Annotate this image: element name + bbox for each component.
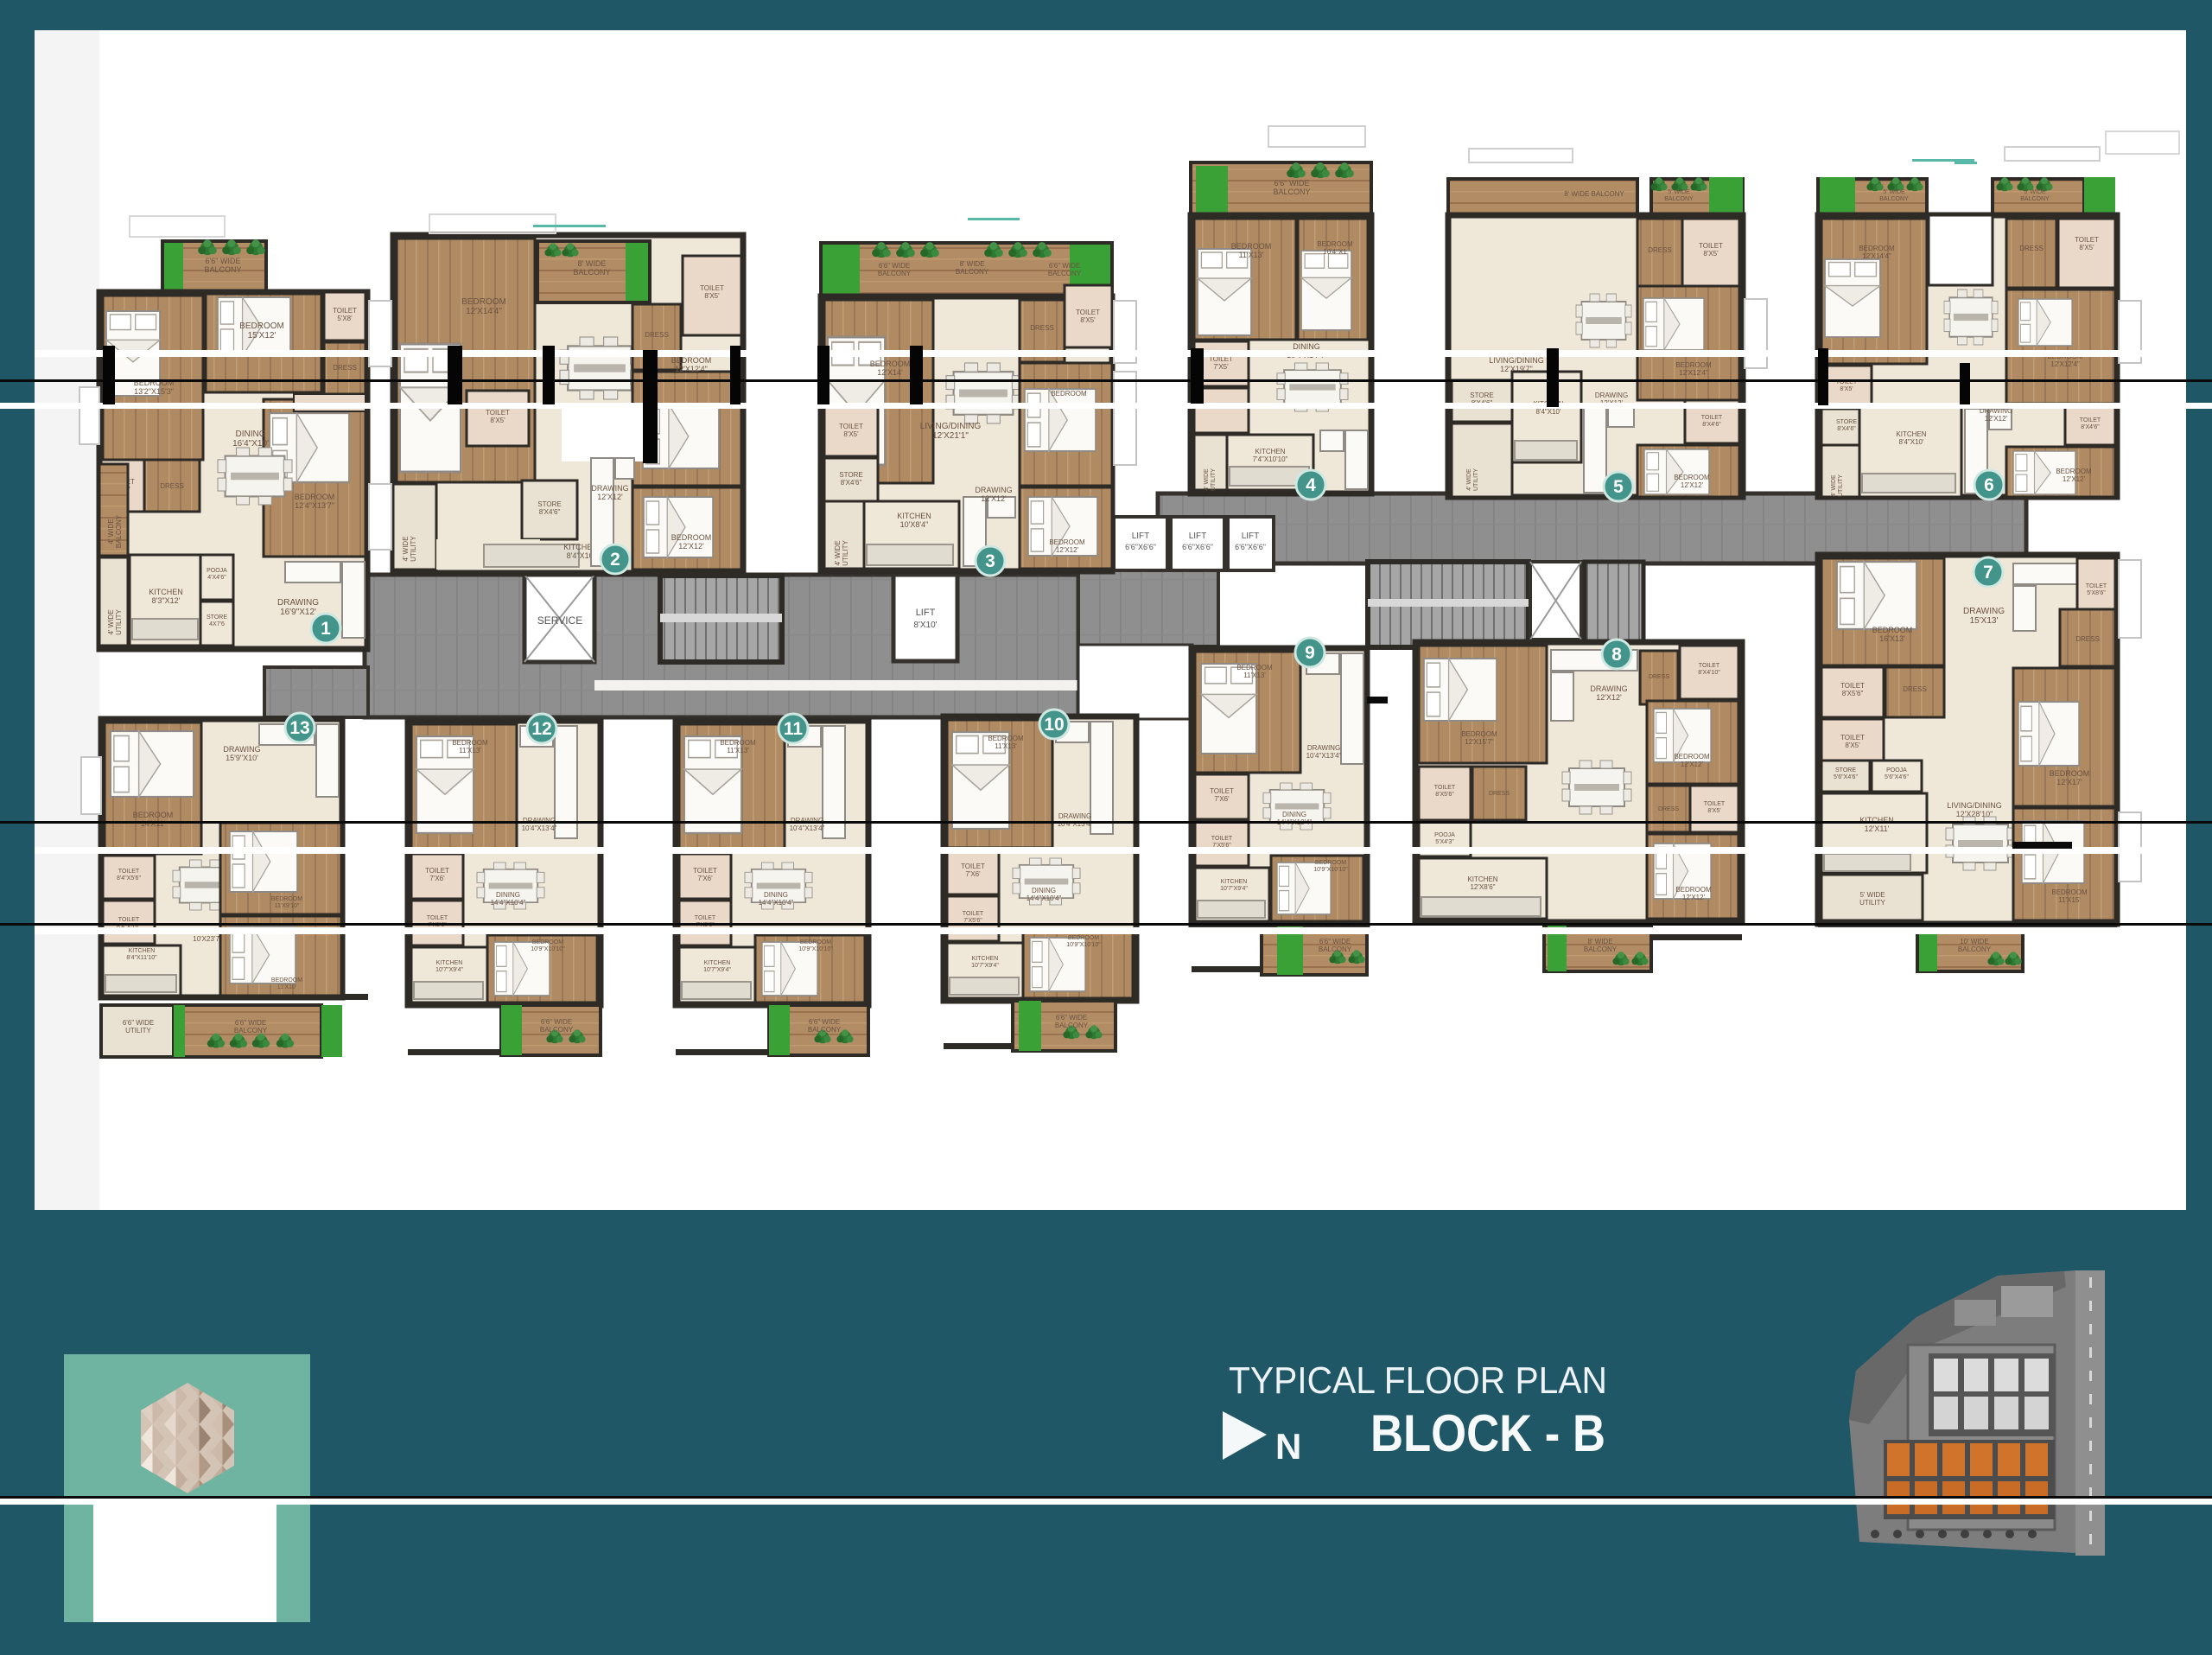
svg-text:7: 7 <box>1983 563 1993 582</box>
svg-text:6'6" WIDEBALCONY: 6'6" WIDEBALCONY <box>234 1019 268 1034</box>
svg-text:DRESS: DRESS <box>333 364 357 372</box>
svg-text:6'6" WIDEBALCONY: 6'6" WIDEBALCONY <box>1319 938 1352 953</box>
svg-text:6'6" WIDEUTILITY: 6'6" WIDEUTILITY <box>123 1019 154 1034</box>
svg-text:8' WIDEBALCONY: 8' WIDEBALCONY <box>956 260 989 276</box>
svg-text:6: 6 <box>1984 475 1994 495</box>
svg-text:BEDROOM: BEDROOM <box>1051 390 1087 398</box>
svg-text:DRESS: DRESS <box>2075 635 2100 643</box>
svg-text:DRAWING16'9"X12': DRAWING16'9"X12' <box>277 598 319 617</box>
svg-text:KITCHEN8'4"X11'10": KITCHEN8'4"X11'10" <box>126 948 157 961</box>
svg-text:6'6" WIDEBALCONY: 6'6" WIDEBALCONY <box>878 262 912 277</box>
svg-text:4' WIDEUTILITY: 4' WIDEUTILITY <box>1466 468 1479 491</box>
svg-text:KITCHEN10'7"X9'4": KITCHEN10'7"X9'4" <box>1220 879 1248 892</box>
svg-text:TOILET8'X4'6": TOILET8'X4'6" <box>1701 415 1723 428</box>
svg-text:DRAWING10'4"X13'4": DRAWING10'4"X13'4" <box>790 817 825 832</box>
svg-text:BEDROOM11'X9'10": BEDROOM11'X9'10" <box>271 896 302 909</box>
svg-text:BEDROOM12'4"X13'7": BEDROOM12'4"X13'7" <box>295 493 335 510</box>
svg-text:KITCHEN10'X8'4": KITCHEN10'X8'4" <box>897 512 931 529</box>
svg-text:4' WIDEUTILITY: 4' WIDEUTILITY <box>1204 468 1217 491</box>
svg-text:LIFT: LIFT <box>1189 532 1207 541</box>
svg-text:TOILET5'X8'6": TOILET5'X8'6" <box>2086 583 2107 596</box>
svg-text:11: 11 <box>784 719 804 739</box>
svg-text:KITCHEN12'X8'6": KITCHEN12'X8'6" <box>1467 875 1497 891</box>
svg-text:TOILET7'X5'6": TOILET7'X5'6" <box>427 915 448 928</box>
svg-text:10' WIDEBALCONY: 10' WIDEBALCONY <box>1958 938 1992 953</box>
svg-text:DINING16'4"X10': DINING16'4"X10' <box>232 430 269 449</box>
svg-text:STORE4X7'6: STORE4X7'6 <box>207 614 227 627</box>
svg-text:DRESS: DRESS <box>1649 674 1669 680</box>
svg-text:8' WIDE BALCONY: 8' WIDE BALCONY <box>1564 190 1624 198</box>
svg-text:KITCHEN10'7"X9'4": KITCHEN10'7"X9'4" <box>971 956 999 969</box>
svg-text:13: 13 <box>289 718 309 738</box>
svg-text:6'6" WIDEBALCONY: 6'6" WIDEBALCONY <box>1273 179 1310 196</box>
svg-text:POOJA5'X4'3": POOJA5'X4'3" <box>1434 832 1455 845</box>
svg-text:8'X10': 8'X10' <box>913 621 937 630</box>
svg-text:TOILET7'X5'6": TOILET7'X5'6" <box>963 911 984 924</box>
svg-text:BEDROOM12'X12'4": BEDROOM12'X12'4" <box>671 356 712 373</box>
svg-text:4' WIDEUTILITY: 4' WIDEUTILITY <box>1831 474 1844 497</box>
svg-text:POOJA5'6"X4'6": POOJA5'6"X4'6" <box>1885 767 1909 780</box>
svg-text:BEDROOM10'9"X10'10": BEDROOM10'9"X10'10" <box>1066 935 1101 948</box>
svg-text:TOILET7'X5'6": TOILET7'X5'6" <box>1211 836 1233 849</box>
svg-text:N: N <box>1275 1426 1301 1467</box>
svg-text:BEDROOM12'X14'4": BEDROOM12'X14'4" <box>1859 245 1895 260</box>
svg-text:BEDROOM12'X12'4": BEDROOM12'X12'4" <box>1675 361 1712 377</box>
svg-text:5: 5 <box>1613 477 1624 497</box>
svg-text:4' WIDEUTILITY: 4' WIDEUTILITY <box>834 539 849 565</box>
svg-text:DRAWING10'4"X13'4": DRAWING10'4"X13'4" <box>1058 812 1093 828</box>
svg-text:DRAWING10'4"X13'4": DRAWING10'4"X13'4" <box>1306 744 1342 760</box>
svg-text:DRESS: DRESS <box>160 482 184 490</box>
svg-text:DRESS: DRESS <box>1030 324 1054 332</box>
svg-text:KITCHEN7'4"X10'10": KITCHEN7'4"X10'10" <box>1253 448 1288 463</box>
svg-text:BLOCK - B: BLOCK - B <box>1370 1404 1605 1462</box>
svg-text:BEDROOM10'9"X10'10": BEDROOM10'9"X10'10" <box>531 939 565 952</box>
svg-text:TOILET8'X4'10": TOILET8'X4'10" <box>1698 663 1720 676</box>
svg-text:5' WIDEBALCONY: 5' WIDEBALCONY <box>1664 189 1694 202</box>
svg-text:SERVICE: SERVICE <box>537 614 582 627</box>
svg-text:POOJA4'X4'6": POOJA4'X4'6" <box>207 568 227 581</box>
svg-text:3: 3 <box>985 551 995 571</box>
svg-text:LIFT: LIFT <box>1242 532 1260 541</box>
svg-text:DRESS: DRESS <box>1648 246 1672 254</box>
svg-text:DRESS: DRESS <box>1658 806 1679 812</box>
svg-text:8' WIDEBALCONY: 8' WIDEBALCONY <box>573 259 610 277</box>
svg-text:TOILET8'X5'6": TOILET8'X5'6" <box>1434 785 1456 798</box>
svg-text:KITCHEN12'X11': KITCHEN12'X11' <box>1859 816 1894 833</box>
svg-text:DRESS: DRESS <box>2019 245 2044 252</box>
svg-text:KITCHEN8'4"X10': KITCHEN8'4"X10' <box>1896 430 1926 446</box>
svg-text:KITCHEN10'7"X9'4": KITCHEN10'7"X9'4" <box>435 960 463 973</box>
svg-text:LIFT: LIFT <box>916 608 936 618</box>
svg-text:BEDROOM12'X15'7": BEDROOM12'X15'7" <box>1461 730 1497 746</box>
svg-text:6'6" WIDEBALCONY: 6'6" WIDEBALCONY <box>1048 262 1082 277</box>
svg-text:TYPICAL FLOOR PLAN: TYPICAL FLOOR PLAN <box>1229 1359 1607 1402</box>
svg-text:TOILET7'X5'6": TOILET7'X5'6" <box>695 915 716 928</box>
svg-text:5' WIDEUTILITY: 5' WIDEUTILITY <box>1859 891 1885 907</box>
svg-text:TOILET8'4"X5'6": TOILET8'4"X5'6" <box>117 869 141 882</box>
svg-text:6'6"X6'6": 6'6"X6'6" <box>1125 543 1156 551</box>
svg-text:8: 8 <box>1611 645 1622 665</box>
svg-text:KITCHEN10'7"X9'4": KITCHEN10'7"X9'4" <box>703 960 731 973</box>
svg-text:LIFT: LIFT <box>1132 532 1150 541</box>
svg-text:6'6" WIDEBALCONY: 6'6" WIDEBALCONY <box>808 1018 842 1034</box>
svg-text:KITCHEN8'3"X12': KITCHEN8'3"X12' <box>149 588 183 605</box>
svg-text:DRAWING10'4"X13'4": DRAWING10'4"X13'4" <box>522 817 557 832</box>
svg-text:TOILET8'X5'6": TOILET8'X5'6" <box>1840 682 1865 697</box>
svg-text:4' WIDEBALCONY: 4' WIDEBALCONY <box>107 514 123 548</box>
svg-text:6'6" WIDEBALCONY: 6'6" WIDEBALCONY <box>204 257 241 274</box>
svg-text:1: 1 <box>321 619 331 639</box>
svg-text:12: 12 <box>531 719 551 739</box>
svg-text:DRESS: DRESS <box>645 331 669 339</box>
svg-text:BEDROOM10'9"X10'10": BEDROOM10'9"X10'10" <box>798 939 833 952</box>
svg-text:6'6"X6'6": 6'6"X6'6" <box>1182 543 1213 551</box>
svg-text:4: 4 <box>1306 475 1316 495</box>
svg-text:TOILET8'X4'6": TOILET8'X4'6" <box>2080 417 2101 430</box>
svg-text:BEDROOM12'X14'4": BEDROOM12'X14'4" <box>461 297 506 316</box>
svg-text:STORE8'X4'6": STORE8'X4'6" <box>1836 419 1857 432</box>
svg-text:4' WIDEUTILITY: 4' WIDEUTILITY <box>107 608 123 634</box>
svg-text:5' WIDEBALCONY: 5' WIDEBALCONY <box>1879 189 1909 202</box>
svg-text:2: 2 <box>610 550 620 570</box>
svg-text:DRAWING15'9"X10': DRAWING15'9"X10' <box>223 745 260 762</box>
svg-text:5' WIDEBALCONY: 5' WIDEBALCONY <box>2020 189 2050 202</box>
svg-text:6'6"X6'6": 6'6"X6'6" <box>1235 543 1266 551</box>
svg-text:BEDROOM10'9"X10'10": BEDROOM10'9"X10'10" <box>1313 860 1348 873</box>
svg-text:9: 9 <box>1305 643 1315 663</box>
svg-text:8' WIDEBALCONY: 8' WIDEBALCONY <box>1584 938 1618 953</box>
svg-text:4' WIDEUTILITY: 4' WIDEUTILITY <box>402 535 417 561</box>
svg-text:6'6" WIDEBALCONY: 6'6" WIDEBALCONY <box>540 1018 574 1034</box>
svg-text:6'6" WIDEBALCONY: 6'6" WIDEBALCONY <box>1055 1014 1089 1029</box>
svg-text:10: 10 <box>1044 715 1064 735</box>
svg-text:DRESS: DRESS <box>1903 685 1927 693</box>
svg-text:STORE8'X4'6": STORE8'X4'6" <box>839 471 862 487</box>
svg-text:STORE8'X4'6": STORE8'X4'6" <box>537 500 561 516</box>
svg-text:DRESS: DRESS <box>1489 791 1510 797</box>
svg-text:STORE5'6"X4'6": STORE5'6"X4'6" <box>1834 767 1858 780</box>
